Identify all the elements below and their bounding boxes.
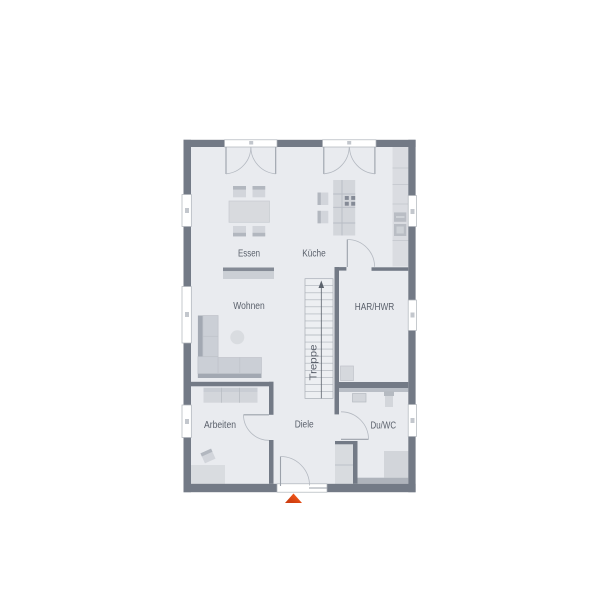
svg-text:Essen: Essen bbox=[238, 248, 260, 260]
svg-text:Küche: Küche bbox=[302, 248, 326, 260]
svg-text:HAR/HWR: HAR/HWR bbox=[355, 301, 395, 313]
svg-text:Diele: Diele bbox=[295, 419, 314, 431]
svg-text:Wohnen: Wohnen bbox=[233, 300, 265, 312]
svg-text:Arbeiten: Arbeiten bbox=[204, 419, 236, 431]
svg-text:Du/WC: Du/WC bbox=[371, 420, 397, 431]
svg-text:Treppe: Treppe bbox=[309, 344, 320, 380]
